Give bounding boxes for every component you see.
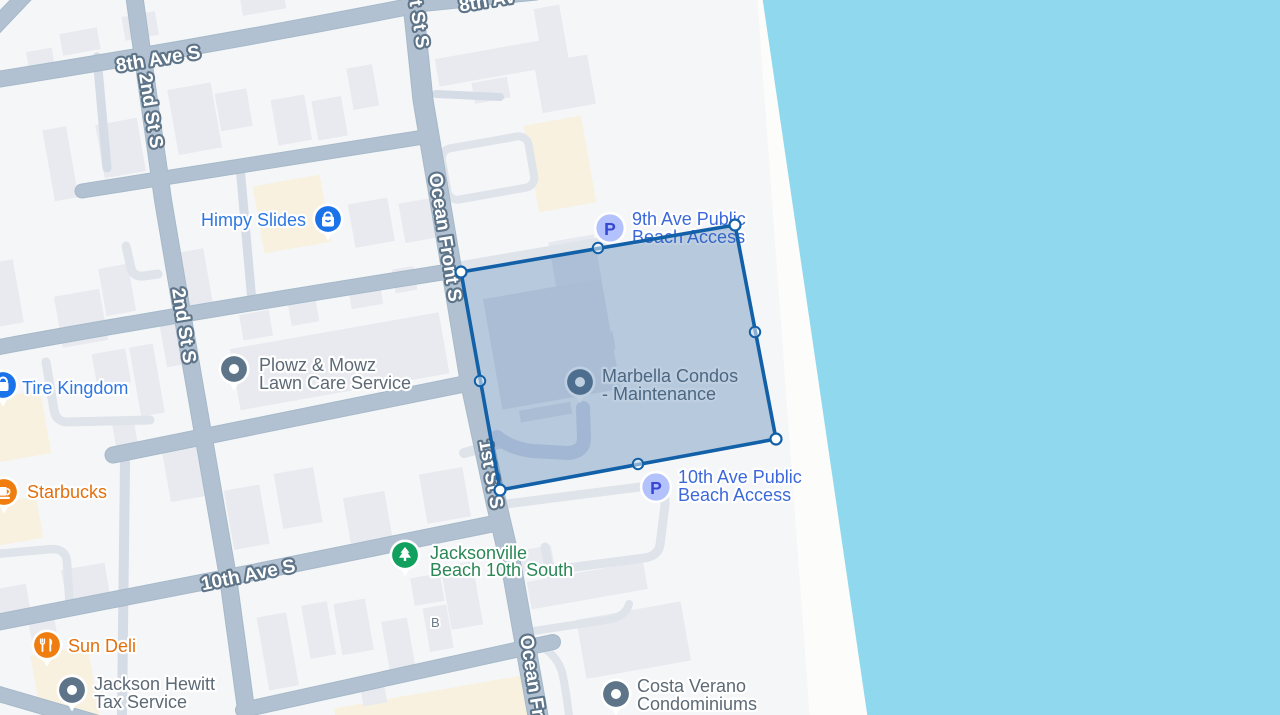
svg-text:Beach 10th South: Beach 10th South [430, 560, 573, 580]
svg-text:P: P [650, 478, 662, 498]
svg-text:Beach Access: Beach Access [678, 485, 791, 505]
svg-text:Jackson Hewitt: Jackson Hewitt [94, 674, 215, 694]
svg-text:10th Ave Public: 10th Ave Public [678, 467, 802, 487]
svg-text:Costa Verano: Costa Verano [637, 676, 746, 696]
svg-text:Himpy Slides: Himpy Slides [201, 210, 306, 230]
svg-text:Tire Kingdom: Tire Kingdom [22, 378, 128, 398]
svg-text:Sun Deli: Sun Deli [68, 636, 136, 656]
svg-text:Lawn Care Service: Lawn Care Service [259, 373, 411, 393]
svg-text:Plowz & Mowz: Plowz & Mowz [259, 355, 376, 375]
svg-text:P: P [604, 219, 616, 239]
svg-text:Starbucks: Starbucks [27, 482, 107, 502]
svg-text:B: B [431, 615, 440, 630]
svg-text:Condominiums: Condominiums [637, 694, 757, 714]
svg-text:Tax Service: Tax Service [94, 692, 187, 712]
